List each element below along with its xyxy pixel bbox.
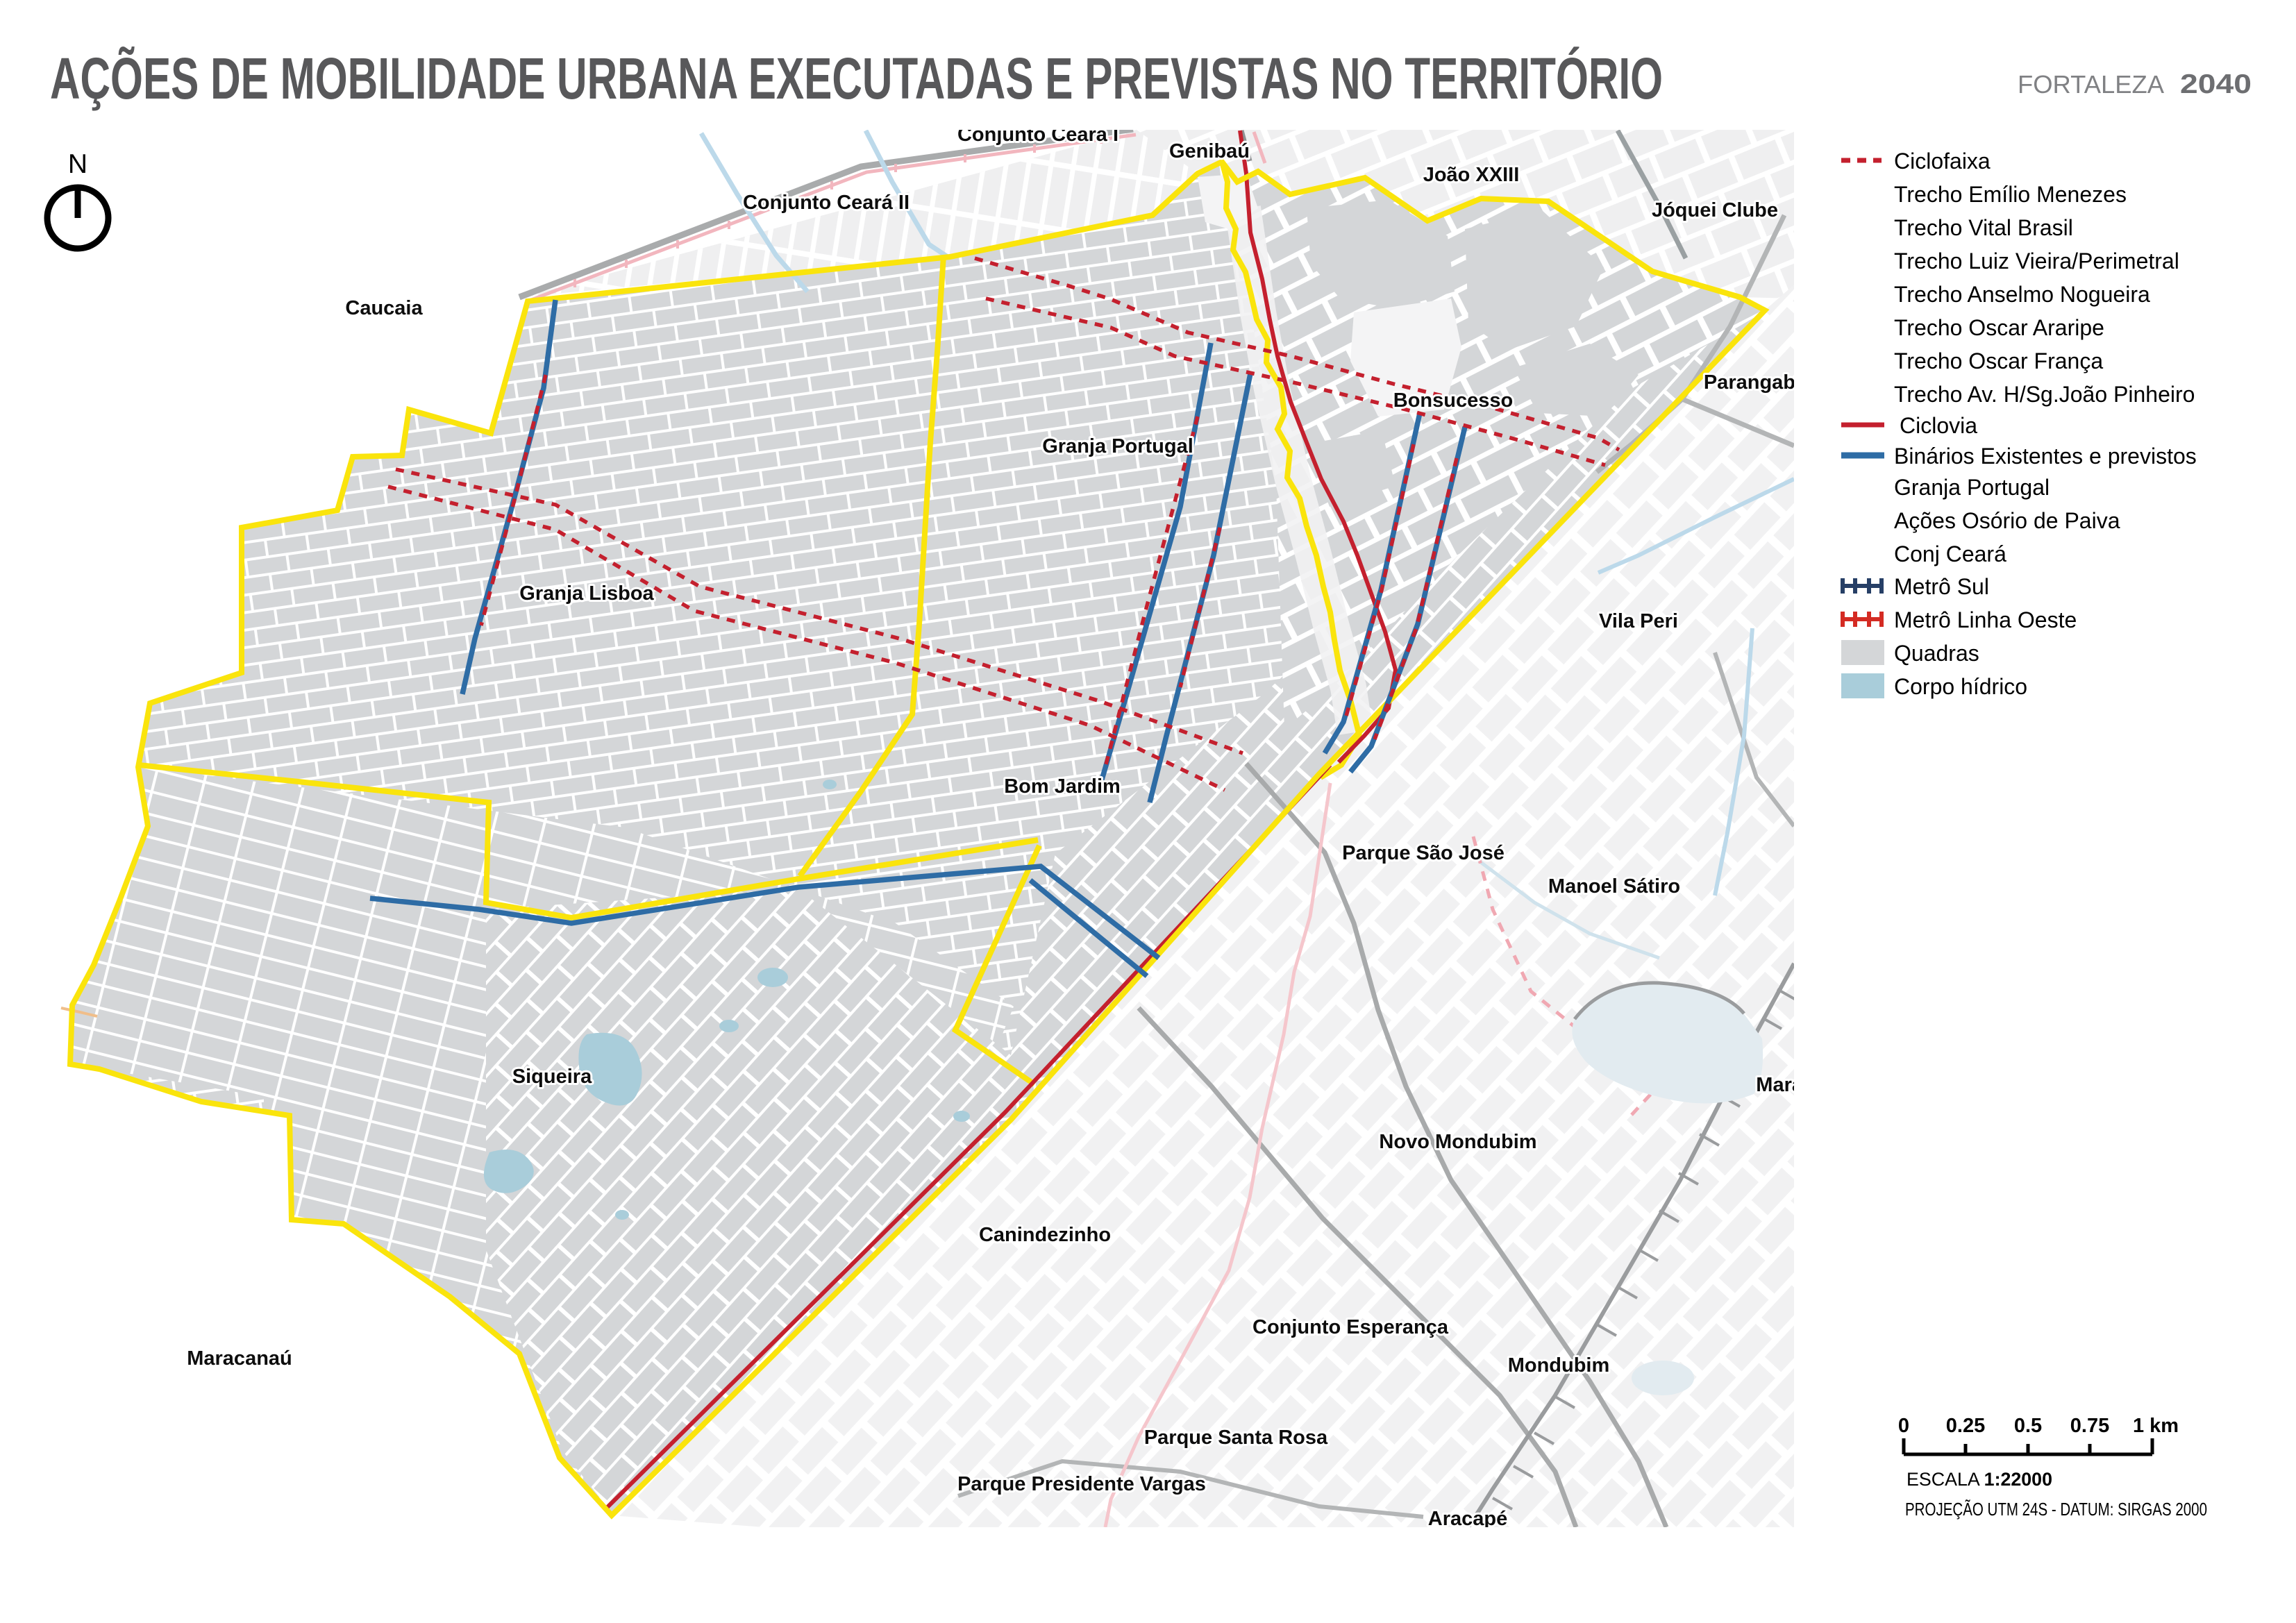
svg-text:Trecho Vital Brasil: Trecho Vital Brasil [1894,215,2073,240]
svg-text:Quadras: Quadras [1894,641,1979,666]
svg-text:Conjunto Ceará I: Conjunto Ceará I [957,124,1118,146]
svg-text:FORTALEZA: FORTALEZA [2018,70,2164,99]
svg-text:Vila Peri: Vila Peri [1599,610,1678,632]
svg-text:Conjunto Ceará II: Conjunto Ceará II [743,192,910,214]
svg-text:Novo Mondubim: Novo Mondubim [1379,1131,1536,1153]
svg-text:Canindezinho: Canindezinho [979,1224,1111,1246]
svg-text:Marap: Marap [1756,1074,1815,1096]
svg-text:Trecho Oscar França: Trecho Oscar França [1894,348,2103,373]
svg-text:Maracanaú: Maracanaú [187,1347,292,1370]
svg-text:Manoel Sátiro: Manoel Sátiro [1548,875,1680,898]
svg-text:Parangaba: Parangaba [1704,371,1807,394]
svg-text:ESCALA 1:22000: ESCALA 1:22000 [1907,1469,2052,1490]
svg-text:Conj Ceará: Conj Ceará [1894,541,2006,566]
svg-text:2040: 2040 [2180,69,2252,99]
svg-text:Siqueira: Siqueira [512,1066,592,1088]
svg-text:PROJEÇÃO UTM 24S - DATUM: SIRG: PROJEÇÃO UTM 24S - DATUM: SIRGAS 2000 [1905,1499,2207,1520]
svg-text:Ciclofaixa: Ciclofaixa [1894,149,1991,174]
svg-text:Aracapé: Aracapé [1428,1508,1507,1530]
svg-text:Parque Santa Rosa: Parque Santa Rosa [1144,1427,1328,1449]
svg-text:0.5: 0.5 [2014,1415,2042,1437]
svg-text:Metrô Linha Oeste: Metrô Linha Oeste [1894,607,2077,632]
svg-text:Granja Portugal: Granja Portugal [1042,435,1193,457]
svg-text:Bom Jardim: Bom Jardim [1004,775,1121,798]
svg-text:Jóquei Clube: Jóquei Clube [1652,199,1778,221]
svg-text:AÇÕES DE MOBILIDADE URBANA EXE: AÇÕES DE MOBILIDADE URBANA EXECUTADAS E … [50,46,1663,111]
svg-text:0.25: 0.25 [1946,1415,1985,1437]
svg-text:Granja Lisboa: Granja Lisboa [519,582,654,605]
svg-text:Caucaia: Caucaia [345,297,423,319]
svg-text:Ciclovia: Ciclovia [1900,413,1977,438]
svg-text:Metrô Sul: Metrô Sul [1894,574,1989,599]
svg-text:0: 0 [1898,1415,1909,1437]
svg-text:Trecho Emílio Menezes: Trecho Emílio Menezes [1894,182,2127,207]
svg-text:Trecho Av. H/Sg.João Pinheiro: Trecho Av. H/Sg.João Pinheiro [1894,382,2195,407]
svg-text:Parque Presidente Vargas: Parque Presidente Vargas [957,1473,1206,1495]
svg-text:Corpo hídrico: Corpo hídrico [1894,674,2027,699]
svg-text:Trecho Oscar Araripe: Trecho Oscar Araripe [1894,315,2104,340]
svg-text:N: N [68,149,87,179]
svg-text:João XXIII: João XXIII [1423,164,1520,186]
svg-text:1 km: 1 km [2133,1415,2179,1437]
svg-text:Bonsucesso: Bonsucesso [1393,389,1513,412]
svg-text:Binários Existentes e previsto: Binários Existentes e previstos [1894,444,2197,469]
svg-text:Ações Osório de Paiva: Ações Osório de Paiva [1894,508,2120,533]
svg-text:Genibaú: Genibaú [1169,140,1250,162]
svg-text:Trecho Anselmo Nogueira: Trecho Anselmo Nogueira [1894,282,2150,307]
svg-text:Parque São José: Parque São José [1342,842,1505,864]
svg-text:Granja Portugal: Granja Portugal [1894,475,2050,500]
svg-text:Trecho Luiz Vieira/Perimetral: Trecho Luiz Vieira/Perimetral [1894,249,2179,274]
svg-text:Mondubim: Mondubim [1508,1354,1610,1377]
svg-text:0.75: 0.75 [2070,1415,2109,1437]
svg-text:Conjunto Esperança: Conjunto Esperança [1252,1316,1449,1338]
